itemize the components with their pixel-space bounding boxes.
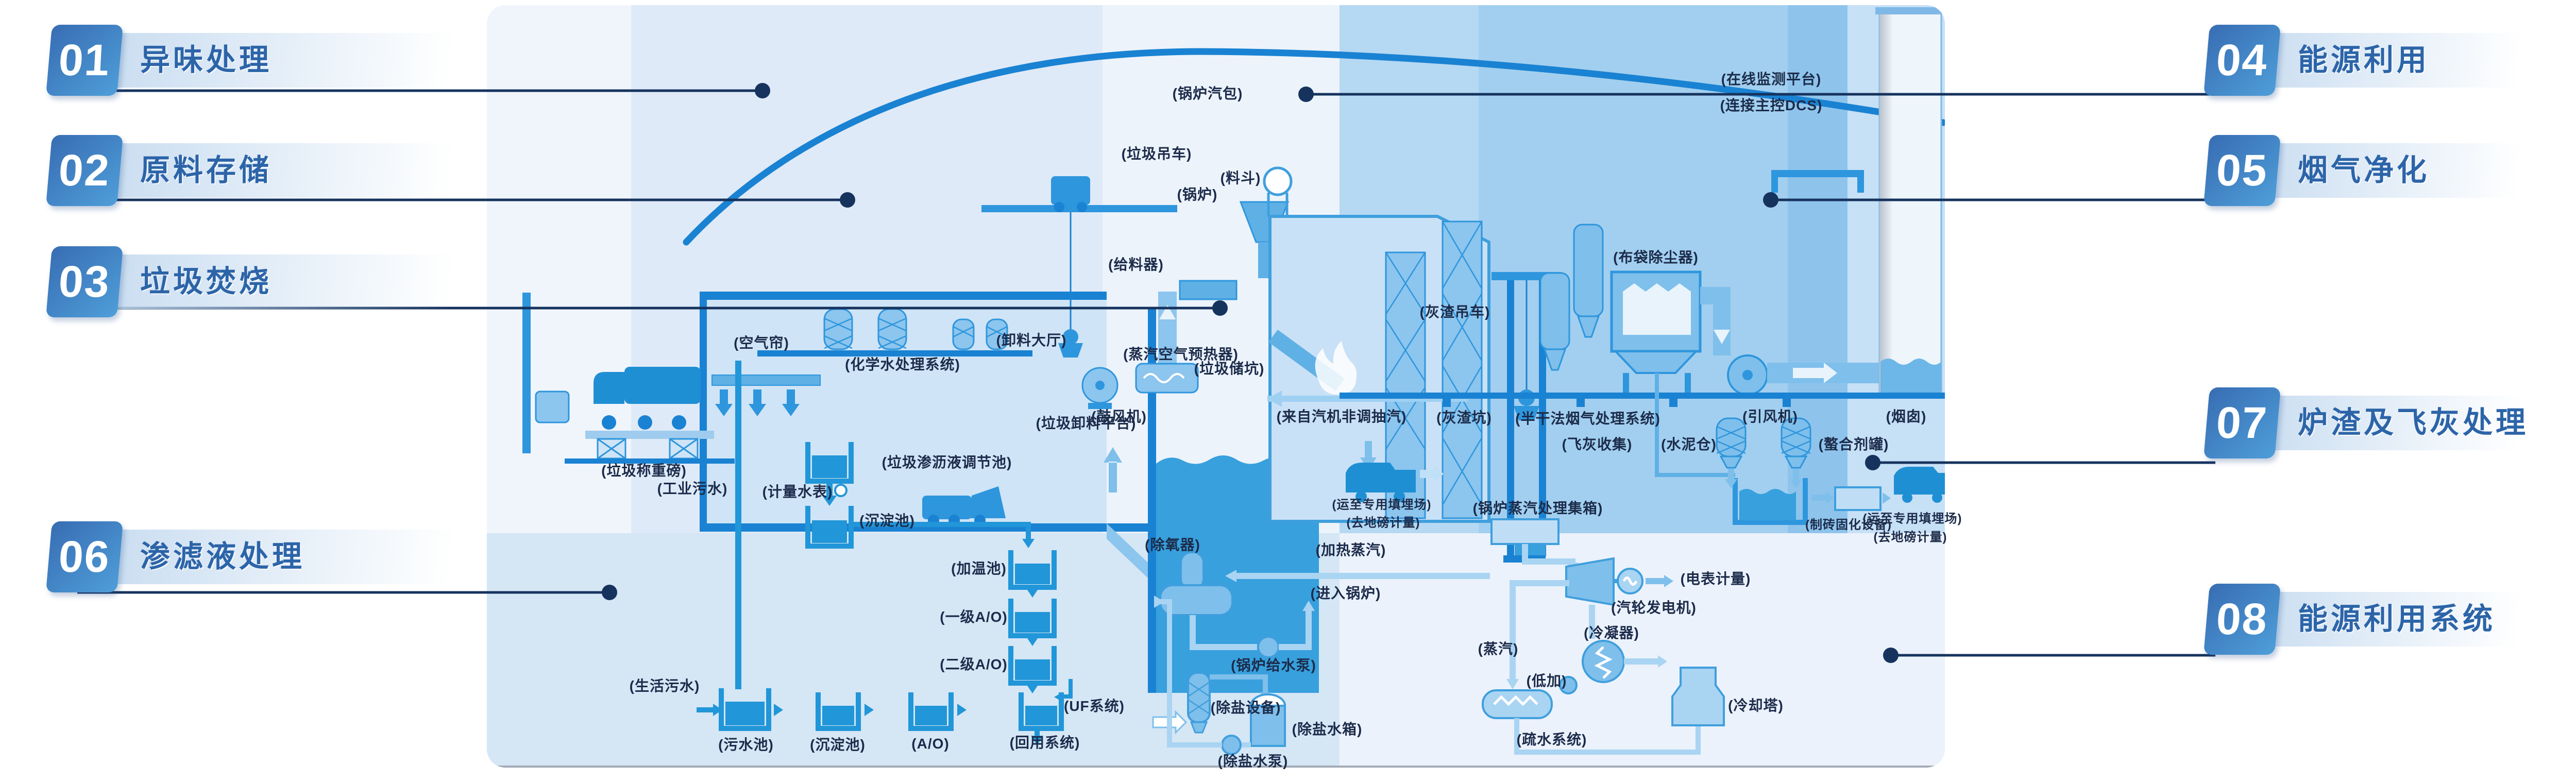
label-leachate-regulating-tank: (垃圾渗沥液调节池) xyxy=(882,451,1012,472)
label-boiler: (锅炉) xyxy=(1177,183,1218,204)
diagram-labels-layer: (锅炉汽包)(垃圾吊车)(料斗)(在线监测平台)(连接主控DCS)(空气帘)(卸… xyxy=(0,0,2576,782)
label-turbine-extraction-steam: (来自汽机非调抽汽) xyxy=(1277,405,1407,426)
label-dcs-link: (连接主控DCS) xyxy=(1720,94,1823,115)
label-lp-heater: (低加) xyxy=(1527,670,1567,690)
label-cooling-tower: (冷却塔) xyxy=(1728,694,1784,715)
label-water-meter: (计量水表) xyxy=(762,481,833,501)
label-sewage-tank: (污水池) xyxy=(718,734,774,754)
label-demin-water-pump: (除盐水泵) xyxy=(1218,750,1289,771)
label-electric-metering: (电表计量) xyxy=(1681,568,1751,588)
label-demin-water-tank: (除盐水箱) xyxy=(1292,718,1363,739)
label-to-landfill-right: (运至专用填埋场) xyxy=(1863,508,1962,526)
label-hopper: (料斗) xyxy=(1221,167,1261,188)
label-boiler-feed-pump: (锅炉给水泵) xyxy=(1231,654,1316,675)
label-feeder: (给料器) xyxy=(1108,253,1164,274)
label-deaerator: (除氧器) xyxy=(1145,534,1200,554)
label-ao-stage1: (一级A/O) xyxy=(940,606,1007,626)
label-slag-crane: (灰渣吊车) xyxy=(1420,301,1490,321)
label-into-boiler: (进入锅炉) xyxy=(1311,582,1381,603)
label-flyash-collection: (飞灰收集) xyxy=(1562,433,1633,454)
label-demin-equipment: (除盐设备) xyxy=(1211,696,1281,717)
label-ao-stage2: (二级A/O) xyxy=(940,653,1007,674)
label-condenser: (冷凝器) xyxy=(1584,622,1639,642)
label-weigh-metering-left: (去地磅计量) xyxy=(1347,513,1420,531)
label-waste-weighbridge: (垃圾称重磅) xyxy=(601,460,687,480)
label-chelating-agent-tank: (螯合剂罐) xyxy=(1819,433,1889,454)
label-unloading-hall: (卸料大厅) xyxy=(996,329,1067,350)
label-sedimentation-tank-2: (沉淀池) xyxy=(810,734,866,754)
label-semi-dry-fluegas-system: (半干法烟气处理系统) xyxy=(1515,407,1660,428)
label-industrial-wastewater: (工业污水) xyxy=(657,478,728,498)
label-ao-tank: (A/O) xyxy=(911,736,949,752)
label-waste-crane: (垃圾吊车) xyxy=(1122,143,1192,163)
label-bag-filter: (布袋除尘器) xyxy=(1613,246,1699,267)
label-air-curtain: (空气帘) xyxy=(734,332,789,352)
label-turbo-generator: (汽轮发电机) xyxy=(1611,597,1697,617)
label-cement-silo: (水泥仓) xyxy=(1661,433,1717,454)
label-heating-tank: (加温池) xyxy=(951,557,1007,578)
label-boiler-drum: (锅炉汽包) xyxy=(1173,82,1243,103)
label-weigh-metering-right: (去地磅计量) xyxy=(1874,527,1947,545)
label-chimney: (烟囱) xyxy=(1886,405,1927,426)
label-to-landfill-left: (运至专用填埋场) xyxy=(1332,495,1432,513)
label-steam: (蒸汽) xyxy=(1478,638,1519,658)
label-chem-water-system: (化学水处理系统) xyxy=(845,353,960,374)
label-steam-air-preheater: (蒸汽空气预热器) xyxy=(1123,343,1239,364)
label-reuse-system: (回用系统) xyxy=(1010,732,1080,752)
infographic-canvas: 01 异味处理 02 原料存储 03 垃圾焚烧 06 渗滤液处理 04 能源利用… xyxy=(0,0,2576,782)
label-uf-system: (UF系统) xyxy=(1064,695,1125,716)
label-induced-draft-fan: (引风机) xyxy=(1742,405,1798,426)
label-online-monitor-platform: (在线监测平台) xyxy=(1721,68,1822,89)
label-domestic-sewage: (生活污水) xyxy=(630,675,700,695)
label-sedimentation-tank-1: (沉淀池) xyxy=(859,509,915,530)
label-slag-pit: (灰渣坑) xyxy=(1436,406,1492,427)
label-boiler-steam-header: (锅炉蒸汽处理集箱) xyxy=(1473,497,1603,518)
label-blower: (鼓风机) xyxy=(1091,405,1147,426)
label-heating-steam: (加热蒸汽) xyxy=(1316,539,1386,559)
label-drain-system: (疏水系统) xyxy=(1517,728,1587,749)
